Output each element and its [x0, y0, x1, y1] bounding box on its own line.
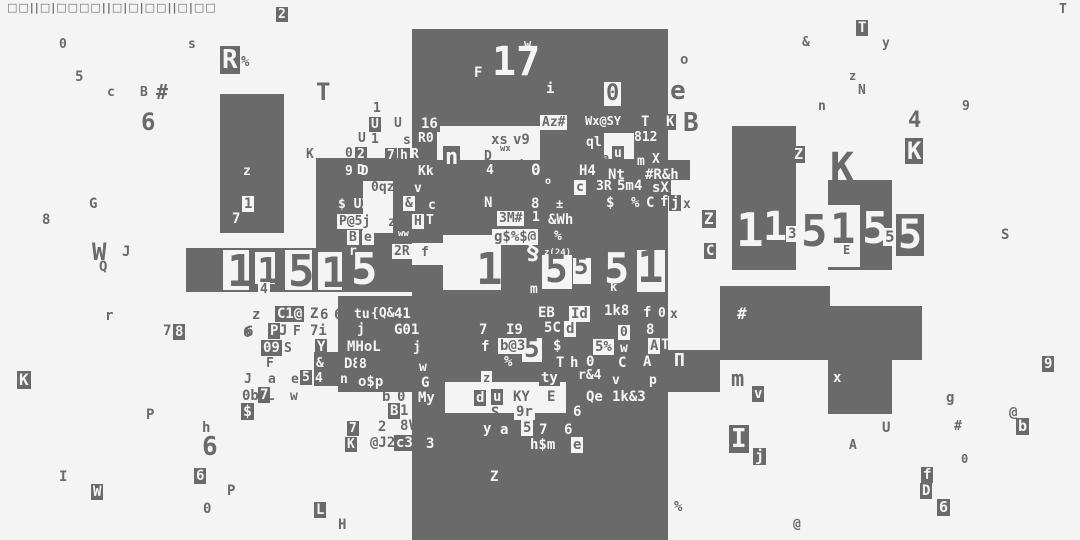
- glyph: tu: [354, 308, 370, 321]
- glyph: W: [91, 484, 103, 500]
- glyph: C: [644, 195, 656, 211]
- glyph: R0: [418, 132, 434, 145]
- glyph: 7: [347, 421, 359, 436]
- glyph: 0: [397, 390, 405, 404]
- glyph: &: [403, 196, 415, 211]
- glyph: 1: [227, 250, 254, 294]
- glyph: 5: [574, 254, 588, 278]
- glyph: Y: [315, 339, 327, 355]
- glyph: EB: [538, 306, 555, 320]
- glyph: w: [524, 38, 531, 50]
- glyph: C1@: [275, 306, 304, 322]
- noise-block: [220, 94, 284, 233]
- glyph: I: [729, 425, 749, 453]
- glyph: u: [612, 146, 624, 161]
- glyph: T: [856, 20, 868, 36]
- glyph: #: [737, 306, 747, 322]
- glyph: 0: [586, 355, 594, 369]
- glyph: cLLJv: [490, 180, 532, 194]
- glyph: `: [519, 160, 527, 173]
- glyph: MHoL: [345, 339, 383, 355]
- glyph: s: [403, 134, 411, 147]
- glyph: F: [474, 66, 482, 80]
- glyph: p: [649, 374, 657, 387]
- glyph: P: [227, 484, 235, 498]
- glyph: T: [1059, 3, 1067, 16]
- glyph: 1: [373, 102, 381, 115]
- glyph: 2: [378, 420, 386, 434]
- glyph: 5: [545, 250, 568, 288]
- glyph: 6: [202, 434, 218, 460]
- glyph: $: [553, 339, 561, 353]
- glyph: U: [882, 421, 890, 435]
- glyph: 9: [1042, 356, 1054, 372]
- glyph: H: [338, 518, 346, 532]
- glyph: o: [545, 177, 551, 187]
- glyph: F: [293, 325, 301, 338]
- glyph: w: [290, 390, 298, 403]
- glyph: 3: [426, 437, 434, 451]
- glyph: F: [266, 357, 274, 370]
- glyph: 5m4: [617, 179, 642, 193]
- glyph: 5: [883, 228, 897, 246]
- glyph: 7: [385, 148, 397, 163]
- glyph: P: [146, 408, 154, 422]
- ascii-art-canvas: □□||□|□□□□||□|□|□□||□|□□ 20sR%5cB#6TTT&y…: [0, 0, 1080, 540]
- glyph: 8V: [400, 419, 417, 433]
- glyph: h: [398, 148, 410, 163]
- glyph: 9r: [514, 404, 535, 420]
- glyph: h$m: [530, 438, 555, 452]
- glyph: 5: [75, 70, 83, 84]
- glyph: K: [17, 371, 31, 389]
- glyph: z: [388, 216, 396, 229]
- glyph: I9: [506, 323, 523, 337]
- glyph: y: [483, 422, 491, 436]
- glyph: a: [268, 373, 276, 386]
- glyph: S: [284, 342, 292, 355]
- glyph: 6: [320, 308, 328, 322]
- glyph: L: [314, 502, 326, 518]
- glyph: %: [674, 500, 682, 514]
- glyph: 6: [571, 404, 583, 420]
- glyph: f: [481, 340, 489, 354]
- glyph: 5: [524, 336, 540, 362]
- glyph: 8: [42, 213, 50, 227]
- glyph: 0: [658, 307, 666, 320]
- glyph: 0: [604, 82, 621, 106]
- glyph: Az#: [540, 115, 567, 130]
- glyph: 5: [288, 250, 315, 294]
- glyph: T: [554, 355, 566, 371]
- glyph: 6: [245, 325, 253, 339]
- glyph: 5: [896, 214, 924, 256]
- glyph: 812: [634, 131, 657, 144]
- glyph: x: [833, 371, 841, 385]
- glyph: ql: [586, 136, 602, 149]
- glyph: {Q&: [369, 306, 396, 321]
- glyph: f: [643, 306, 651, 320]
- glyph: 1: [532, 211, 540, 224]
- glyph: K: [306, 148, 314, 161]
- glyph: 2R: [392, 244, 412, 259]
- glyph: 6: [564, 423, 572, 437]
- glyph: T: [316, 80, 330, 104]
- glyph: %: [241, 55, 249, 69]
- glyph: 1: [763, 207, 787, 247]
- glyph: T: [661, 338, 669, 352]
- glyph: o$p: [356, 374, 385, 390]
- glyph: 0b: [242, 389, 259, 403]
- glyph: Qe: [586, 390, 603, 404]
- glyph: 5%: [593, 339, 614, 355]
- glyph: n: [818, 100, 826, 113]
- glyph: KY: [513, 390, 530, 404]
- glyph: wx: [500, 145, 511, 154]
- glyph: 16: [419, 116, 440, 132]
- glyph: R: [411, 148, 419, 161]
- glyph: 09: [261, 340, 282, 356]
- glyph: y: [882, 37, 890, 50]
- glyph: c: [428, 199, 436, 212]
- glyph: J: [279, 324, 287, 338]
- glyph: 4: [258, 282, 270, 297]
- glyph: j: [753, 448, 766, 465]
- glyph: b: [1016, 418, 1029, 435]
- glyph: N: [482, 195, 494, 211]
- glyph: 7: [479, 323, 487, 337]
- glyph: c: [107, 86, 115, 99]
- glyph: e: [670, 78, 686, 104]
- glyph: 8: [173, 324, 185, 340]
- glyph: m: [637, 155, 645, 168]
- glyph: D: [920, 483, 932, 499]
- glyph: R: [220, 46, 240, 74]
- glyph: 1: [371, 133, 379, 146]
- glyph: u: [491, 389, 503, 405]
- glyph: 0: [529, 161, 543, 179]
- glyph: J: [244, 373, 252, 386]
- glyph: f: [421, 246, 429, 259]
- glyph: §: [525, 238, 541, 264]
- glyph: B: [683, 110, 699, 136]
- glyph: P@5j: [337, 214, 372, 229]
- glyph: 3M#: [497, 211, 524, 226]
- glyph: J: [122, 245, 130, 259]
- glyph: K: [830, 148, 854, 188]
- glyph: k: [610, 281, 617, 293]
- glyph: %: [554, 230, 562, 243]
- glyph: C: [618, 356, 626, 370]
- glyph: 1k8: [602, 303, 631, 319]
- glyph: g: [946, 391, 954, 405]
- glyph: X: [650, 152, 662, 167]
- glyph: T: [426, 214, 434, 227]
- glyph: 9: [962, 100, 970, 113]
- glyph: n: [340, 325, 348, 338]
- glyph: c: [574, 180, 586, 195]
- glyph: %: [631, 196, 639, 210]
- noise-block: [828, 360, 892, 414]
- glyph: a: [500, 423, 508, 437]
- glyph: U: [358, 132, 366, 145]
- glyph: ww: [398, 230, 409, 239]
- glyph: e: [571, 437, 583, 453]
- glyph: &: [316, 357, 324, 370]
- glyph: z: [243, 165, 251, 178]
- glyph: E: [547, 390, 555, 404]
- binary-header-text: □□||□|□□□□||□|□|□□||□|□□: [7, 1, 217, 14]
- glyph: 1: [242, 196, 254, 212]
- glyph: e: [291, 373, 299, 386]
- glyph: A: [648, 338, 660, 354]
- glyph: r: [105, 309, 113, 323]
- glyph: $ U2: [338, 198, 369, 211]
- glyph: Π: [674, 352, 685, 370]
- glyph: Kk: [418, 165, 434, 178]
- noise-block: [830, 306, 922, 360]
- glyph: x: [683, 198, 691, 211]
- glyph: K: [905, 138, 923, 164]
- glyph: 4: [484, 163, 496, 178]
- glyph: H4: [577, 163, 598, 179]
- glyph: C: [704, 243, 716, 259]
- glyph: f: [921, 467, 933, 483]
- glyph: G: [89, 197, 97, 211]
- glyph: w: [419, 361, 427, 374]
- glyph: @J2: [370, 436, 395, 450]
- glyph: v: [752, 386, 764, 402]
- glyph: G: [419, 375, 431, 391]
- glyph: 8: [644, 322, 656, 338]
- glyph: G01: [392, 322, 421, 338]
- glyph: x: [670, 308, 678, 321]
- glyph: 5: [351, 248, 378, 292]
- glyph: 0: [203, 502, 211, 516]
- glyph: j: [413, 341, 421, 354]
- glyph: v: [612, 374, 620, 387]
- glyph: @: [793, 518, 801, 531]
- glyph: D: [484, 150, 492, 163]
- glyph: K: [664, 114, 676, 130]
- glyph: Z: [308, 306, 320, 322]
- glyph: ±: [556, 198, 563, 210]
- glyph: B: [388, 403, 400, 419]
- glyph: B: [140, 86, 148, 99]
- glyph: U: [369, 117, 381, 132]
- glyph: K: [345, 437, 357, 452]
- glyph: 6: [194, 468, 206, 484]
- glyph: 1: [736, 207, 764, 253]
- glyph: 1: [400, 404, 408, 418]
- glyph: r: [566, 391, 574, 405]
- glyph: i: [546, 82, 554, 96]
- glyph: #: [156, 82, 168, 102]
- glyph: c3: [394, 435, 415, 451]
- glyph: $: [241, 403, 254, 420]
- glyph: T: [641, 115, 649, 129]
- glyph: 7: [163, 324, 171, 338]
- glyph: 7: [539, 423, 547, 437]
- glyph: b: [382, 390, 390, 404]
- glyph: Z: [702, 210, 716, 228]
- glyph: 1: [637, 246, 664, 290]
- glyph: S: [1001, 228, 1009, 242]
- glyph: z: [252, 308, 260, 322]
- glyph: 2: [276, 7, 288, 22]
- glyph: 41: [394, 307, 411, 321]
- glyph: N: [858, 84, 866, 97]
- glyph: 0: [961, 453, 968, 465]
- glyph: My: [416, 390, 437, 406]
- glyph: #: [954, 420, 962, 433]
- glyph: 0: [618, 325, 630, 340]
- glyph: w: [618, 341, 630, 356]
- glyph: r&4: [576, 368, 603, 383]
- glyph: 6: [937, 499, 950, 516]
- glyph: s: [188, 38, 196, 51]
- glyph: m: [528, 282, 540, 297]
- glyph: a: [602, 152, 609, 164]
- glyph: 1: [321, 252, 346, 294]
- noise-block: [720, 286, 830, 360]
- glyph: 9 D: [345, 165, 368, 178]
- glyph: Z: [792, 146, 805, 163]
- glyph: 1: [476, 248, 503, 292]
- glyph: 0qz: [371, 181, 394, 194]
- glyph: 2: [355, 147, 367, 162]
- glyph: 5: [300, 370, 312, 385]
- glyph: 0: [345, 147, 353, 160]
- glyph: e: [362, 230, 374, 245]
- glyph: b@3: [498, 338, 527, 354]
- glyph: P: [371, 324, 379, 337]
- glyph: 7i: [310, 324, 327, 338]
- glyph: d: [474, 390, 486, 406]
- glyph: Q: [99, 260, 107, 274]
- glyph: Z: [490, 470, 498, 484]
- glyph: nd: [498, 165, 514, 178]
- glyph: A: [849, 439, 857, 452]
- glyph: %: [504, 355, 512, 369]
- glyph: v9: [513, 133, 530, 147]
- glyph: Wx@SY: [585, 115, 621, 127]
- glyph: z: [849, 70, 856, 82]
- glyph: 4: [315, 372, 323, 385]
- glyph: S: [491, 406, 499, 420]
- glyph: ty: [539, 370, 560, 386]
- glyph: j: [669, 195, 681, 211]
- glyph: 0: [59, 38, 67, 51]
- glyph: 3R: [594, 179, 614, 194]
- glyph: 8: [357, 357, 369, 372]
- glyph: 5C: [544, 321, 561, 335]
- glyph: H: [412, 214, 424, 229]
- glyph: j: [355, 322, 367, 337]
- glyph: v: [412, 181, 424, 196]
- glyph: 5: [521, 420, 533, 436]
- glyph: &Wh: [548, 213, 573, 227]
- glyph: n: [340, 373, 348, 386]
- glyph: 3: [786, 226, 798, 242]
- glyph: L: [266, 389, 274, 403]
- glyph: 5: [799, 209, 830, 255]
- glyph: z: [481, 371, 492, 385]
- glyph: $: [606, 196, 614, 210]
- glyph: n: [443, 146, 460, 170]
- glyph: 6: [141, 110, 155, 134]
- glyph: 4: [908, 110, 921, 132]
- glyph: Id: [569, 306, 590, 322]
- glyph: 7: [232, 212, 240, 226]
- glyph: E: [843, 244, 850, 256]
- glyph: I: [59, 470, 67, 484]
- glyph: d: [564, 321, 576, 337]
- glyph: 17: [492, 42, 540, 82]
- glyph: &: [802, 36, 810, 49]
- glyph: m: [731, 369, 744, 391]
- glyph: A: [643, 355, 651, 369]
- glyph: B: [347, 230, 359, 245]
- glyph: 1k&3: [612, 390, 646, 404]
- glyph: f: [660, 195, 668, 209]
- glyph: o: [680, 53, 688, 67]
- glyph: U: [394, 117, 402, 130]
